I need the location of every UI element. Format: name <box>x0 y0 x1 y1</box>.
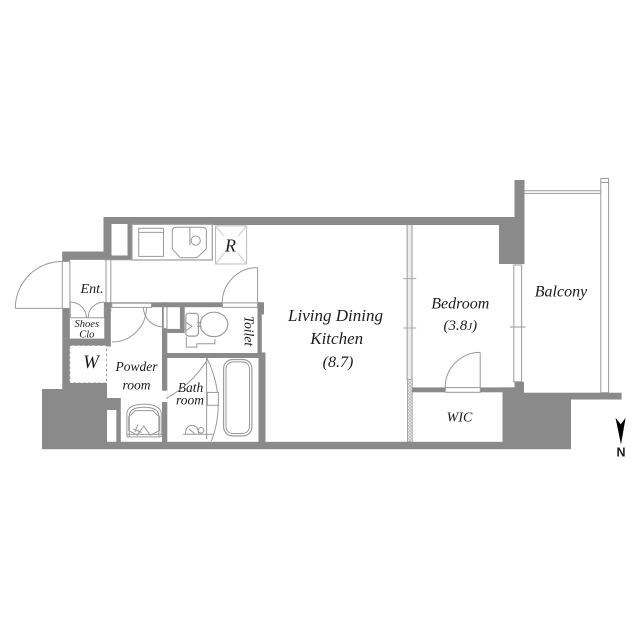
svg-text:Bedroom: Bedroom <box>431 295 489 312</box>
svg-text:Balcony: Balcony <box>535 284 588 301</box>
svg-text:Living Dining: Living Dining <box>287 306 383 325</box>
svg-text:Kitchen: Kitchen <box>309 329 363 348</box>
svg-text:(3.8J): (3.8J) <box>443 318 477 334</box>
svg-text:(8.7): (8.7) <box>323 354 354 371</box>
svg-text:Toilet: Toilet <box>242 316 257 348</box>
svg-text:N: N <box>616 446 625 460</box>
svg-text:Powder: Powder <box>115 359 159 374</box>
svg-text:room: room <box>122 378 150 393</box>
svg-text:WIC: WIC <box>447 410 473 425</box>
svg-text:Ent.: Ent. <box>80 282 104 297</box>
svg-text:W: W <box>83 352 101 373</box>
svg-text:Shoes: Shoes <box>75 319 100 330</box>
svg-text:R: R <box>224 236 236 256</box>
svg-text:room: room <box>176 393 204 408</box>
